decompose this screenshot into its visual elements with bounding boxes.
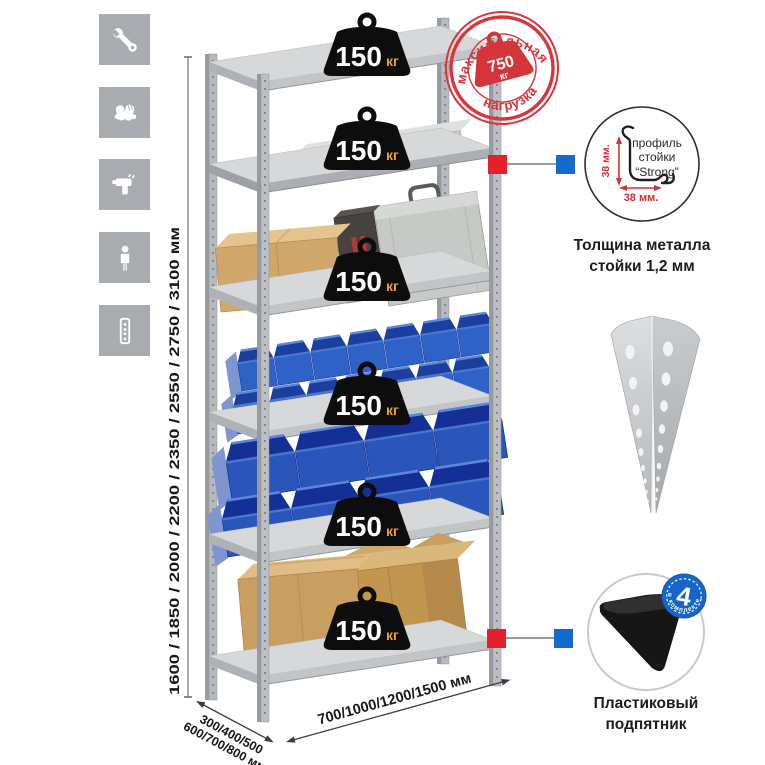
profile-caption: Толщина металла стойки 1,2 мм bbox=[552, 236, 732, 278]
product-infographic: 1600 / 1850 / 2000 / 2200 / 2350 / 2550 … bbox=[0, 0, 765, 765]
profile-dim-horizontal: 38 мм. bbox=[624, 192, 659, 204]
svg-text:“Strong”: “Strong” bbox=[635, 165, 678, 179]
foot-caption-line1: Пластиковый bbox=[556, 694, 736, 715]
height-dimension-label: 1600 / 1850 / 2000 / 2200 / 2350 / 2550 … bbox=[166, 227, 182, 695]
profile-caption-line2: стойки 1,2 мм bbox=[552, 257, 732, 278]
callout-upper bbox=[488, 155, 575, 174]
svg-text:стойки: стойки bbox=[639, 150, 676, 164]
load-weight-2: 150кг bbox=[324, 109, 411, 170]
max-load-stamp: максимальная нагрузка 750 кг bbox=[433, 0, 570, 137]
callout-lower-blue-marker bbox=[554, 629, 573, 648]
corner-post-graphic bbox=[611, 316, 700, 513]
profile-dim-vertical: 38 мм. bbox=[600, 144, 612, 177]
foot-caption: Пластиковый подпятник bbox=[556, 694, 736, 736]
callout-lower bbox=[487, 629, 573, 648]
foot-caption-line2: подпятник bbox=[556, 715, 736, 736]
person-icon bbox=[99, 232, 150, 283]
callout-upper-red-marker bbox=[488, 155, 507, 174]
width-dimension-label: 700/1000/1200/1500 мм bbox=[316, 671, 473, 729]
height-dimension: 1600 / 1850 / 2000 / 2200 / 2350 / 2550 … bbox=[166, 57, 192, 697]
rack-post-icon bbox=[99, 305, 150, 356]
callout-lower-red-marker bbox=[487, 629, 506, 648]
profile-detail: 38 мм. 38 мм. профиль стойки “Strong” bbox=[585, 107, 699, 221]
profile-caption-line1: Толщина металла bbox=[552, 236, 732, 257]
gloves-icon bbox=[99, 87, 150, 138]
plastic-foot-detail: 4 в комплекте bbox=[588, 571, 709, 690]
callout-upper-blue-marker bbox=[556, 155, 575, 174]
svg-text:профиль: профиль bbox=[632, 136, 682, 150]
drill-icon bbox=[99, 159, 150, 210]
load-weight-1: 150кг bbox=[324, 15, 411, 76]
wrench-icon bbox=[99, 14, 150, 65]
